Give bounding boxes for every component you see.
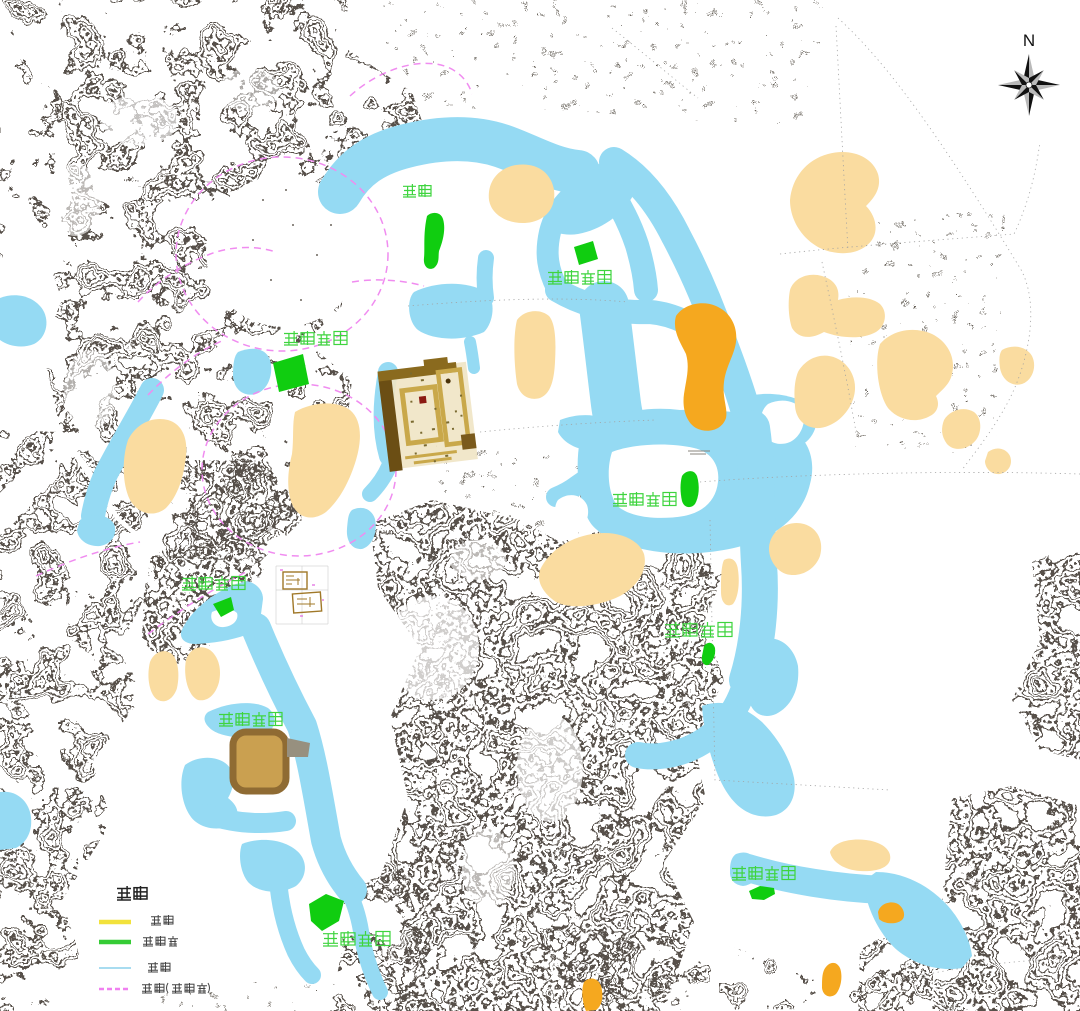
svg-text:N: N [1023,31,1035,50]
